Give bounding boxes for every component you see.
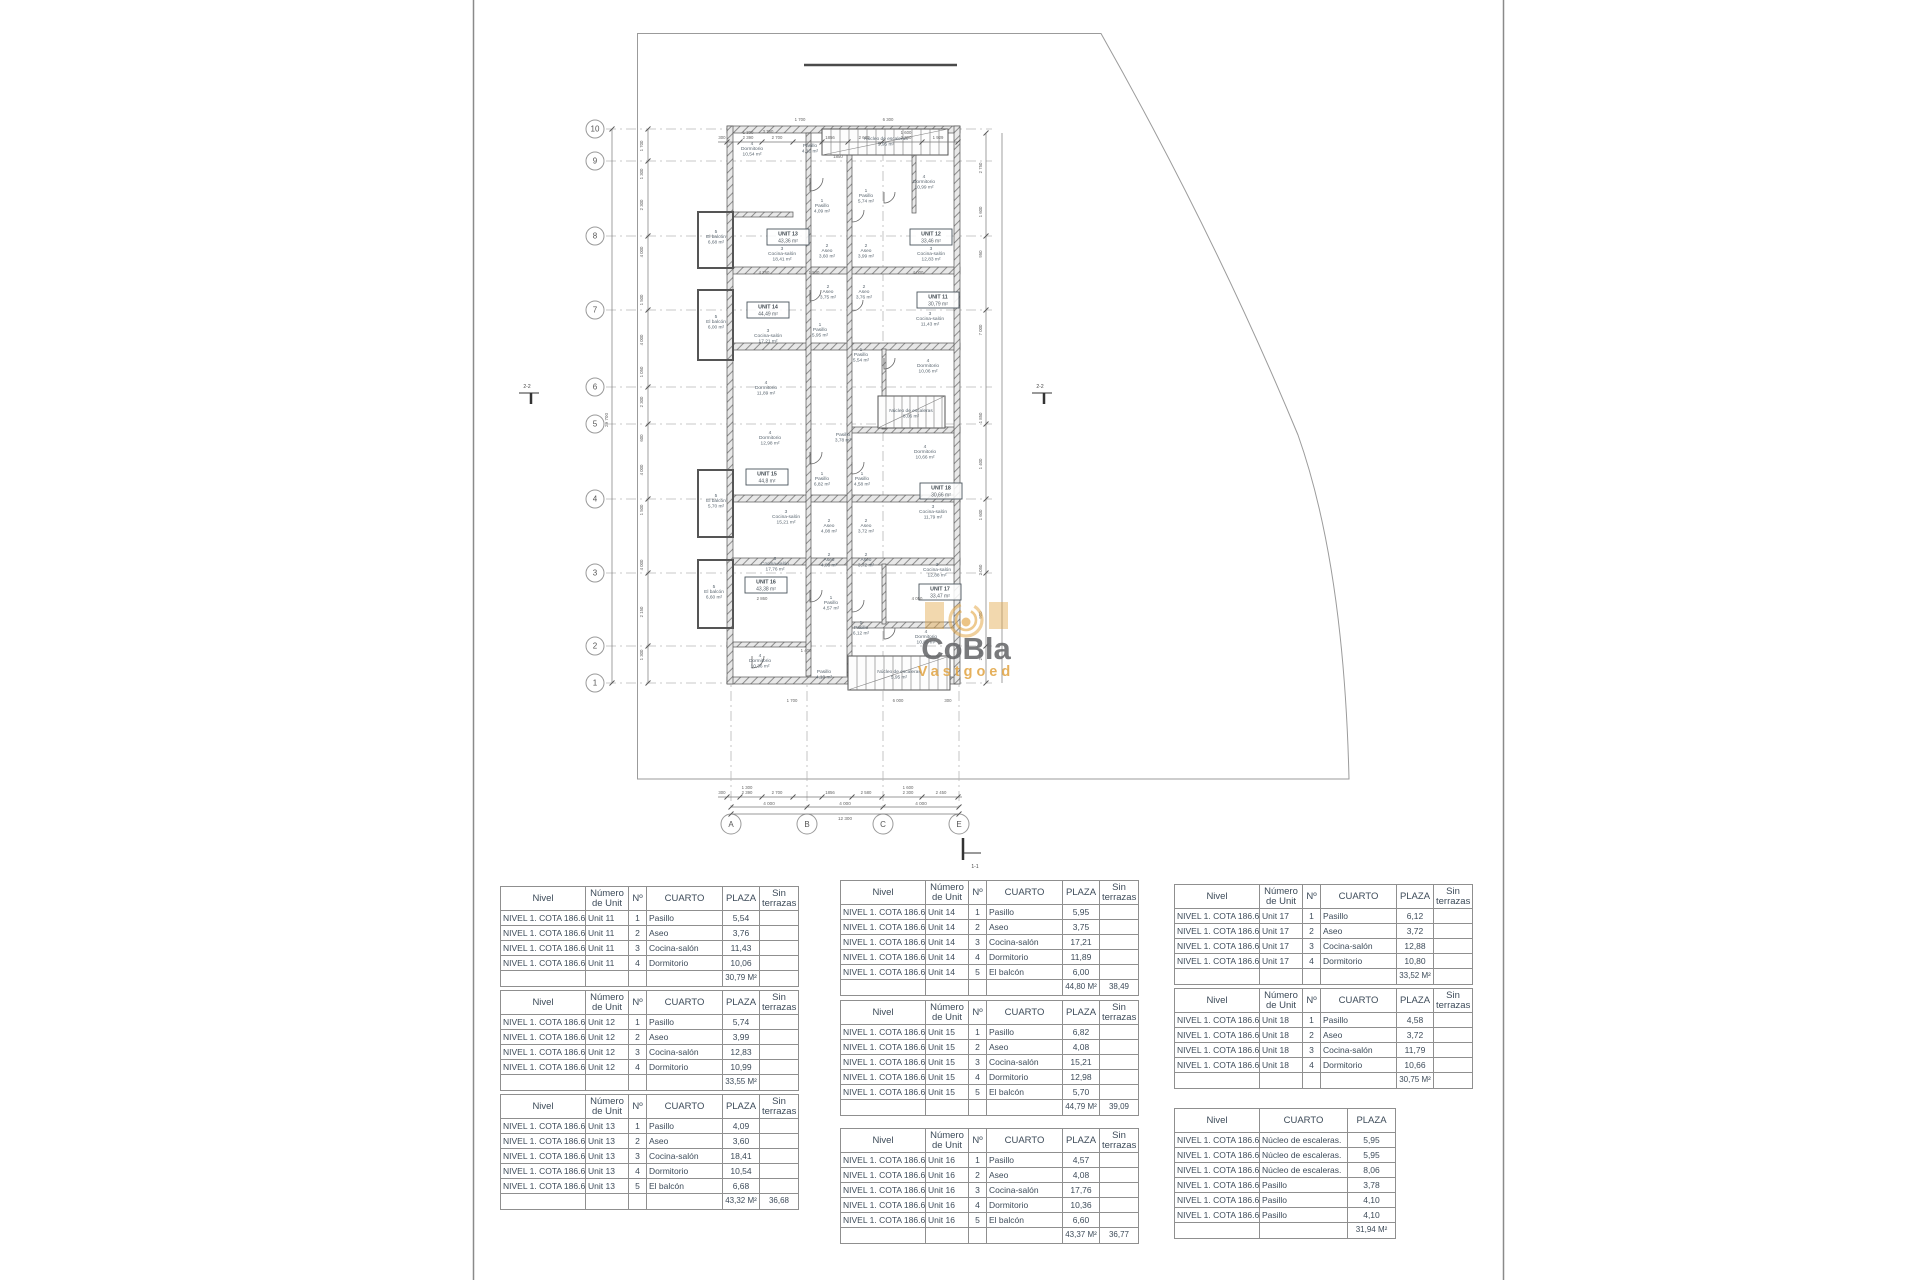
cell-plaza: 10,99 — [723, 1060, 760, 1075]
cell-cuarto — [647, 1075, 723, 1091]
header-plaza: PLAZA — [1063, 1129, 1100, 1153]
cell-plaza: 4,57 — [1063, 1153, 1100, 1168]
table-header-row: NivelNúmero de UnitNºCUARTOPLAZASin terr… — [501, 1095, 799, 1119]
cell-no: 3 — [629, 1149, 647, 1164]
cell-no: 4 — [629, 1164, 647, 1179]
cell-nivel — [1175, 1223, 1260, 1239]
cell-unit: Unit 12 — [586, 1045, 629, 1060]
cell-total-sin — [760, 1075, 799, 1091]
cell-nivel: NIVEL 1. COTA 186.60 — [501, 1015, 586, 1030]
header-numero: Número de Unit — [926, 1001, 969, 1025]
unit-area-table-unit-11: NivelNúmero de UnitNºCUARTOPLAZASin terr… — [500, 886, 799, 987]
cell-sin — [1100, 1070, 1139, 1085]
cell-plaza: 17,21 — [1063, 935, 1100, 950]
cell-nivel: NIVEL 1. COTA 186.60 — [501, 956, 586, 971]
cell-cuarto: Dormitorio — [987, 950, 1063, 965]
cell-nivel: NIVEL 1. COTA 186.60 — [841, 1025, 926, 1040]
common-area-table: NivelCUARTOPLAZANIVEL 1. COTA 186.60Núcl… — [1174, 1108, 1396, 1239]
cell-total-sin — [760, 971, 799, 987]
cell-unit: Unit 11 — [586, 926, 629, 941]
table-header-row: NivelNúmero de UnitNºCUARTOPLAZASin terr… — [501, 991, 799, 1015]
header-plaza: PLAZA — [723, 1095, 760, 1119]
cell-sin — [760, 1045, 799, 1060]
cell-unit — [586, 971, 629, 987]
cell-no: 4 — [969, 950, 987, 965]
table-header-row: NivelCUARTOPLAZA — [1175, 1109, 1396, 1133]
header-nivel: Nivel — [501, 1095, 586, 1119]
cell-sin — [760, 1134, 799, 1149]
cell-total-plaza: 33,52 M² — [1397, 969, 1434, 985]
table-row: NIVEL 1. COTA 186.60Pasillo4,10 — [1175, 1208, 1396, 1223]
table-row: NIVEL 1. COTA 186.60Unit 133Cocina-salón… — [501, 1149, 799, 1164]
cell-cuarto: Aseo — [1321, 1028, 1397, 1043]
cell-sin — [1100, 1198, 1139, 1213]
cell-sin — [1434, 939, 1473, 954]
table-total-row: 30,79 M² — [501, 971, 799, 987]
cell-unit: Unit 16 — [926, 1183, 969, 1198]
table-row: NIVEL 1. COTA 186.60Unit 165El balcón6,6… — [841, 1213, 1139, 1228]
cell-no: 3 — [629, 941, 647, 956]
cell-plaza: 3,60 — [723, 1134, 760, 1149]
cell-plaza: 8,06 — [1348, 1163, 1396, 1178]
table-row: NIVEL 1. COTA 186.60Unit 162Aseo4,08 — [841, 1168, 1139, 1183]
cell-nivel: NIVEL 1. COTA 186.60 — [841, 1153, 926, 1168]
cell-plaza: 3,99 — [723, 1030, 760, 1045]
cell-no: 3 — [969, 1055, 987, 1070]
cell-cuarto: Aseo — [987, 1040, 1063, 1055]
table-row: NIVEL 1. COTA 186.60Unit 181Pasillo4,58 — [1175, 1013, 1473, 1028]
cell-plaza: 10,66 — [1397, 1058, 1434, 1073]
cell-total-plaza: 43,37 M² — [1063, 1228, 1100, 1244]
cell-no: 4 — [629, 1060, 647, 1075]
cell-no: 3 — [1303, 1043, 1321, 1058]
cell-unit: Unit 11 — [586, 911, 629, 926]
header-numero: Número de Unit — [926, 881, 969, 905]
cell-plaza: 4,08 — [1063, 1040, 1100, 1055]
cell-nivel: NIVEL 1. COTA 186.60 — [841, 905, 926, 920]
cell-unit: Unit 13 — [586, 1164, 629, 1179]
cell-no: 5 — [629, 1179, 647, 1194]
cell-cuarto — [1260, 1223, 1348, 1239]
cell-no: 2 — [969, 920, 987, 935]
header-cuarto: CUARTO — [647, 1095, 723, 1119]
cell-unit: Unit 18 — [1260, 1058, 1303, 1073]
cell-no: 2 — [1303, 1028, 1321, 1043]
cell-unit: Unit 17 — [1260, 954, 1303, 969]
cell-nivel: NIVEL 1. COTA 186.60 — [1175, 1028, 1260, 1043]
cell-nivel: NIVEL 1. COTA 186.60 — [1175, 1148, 1260, 1163]
cell-cuarto: Aseo — [647, 1134, 723, 1149]
cell-sin — [1434, 1028, 1473, 1043]
cell-cuarto: Cocina-salón — [987, 935, 1063, 950]
cell-unit: Unit 13 — [586, 1149, 629, 1164]
cell-total-sin: 36,68 — [760, 1194, 799, 1210]
table-row: NIVEL 1. COTA 186.60Unit 135El balcón6,6… — [501, 1179, 799, 1194]
cell-unit: Unit 14 — [926, 920, 969, 935]
cell-nivel: NIVEL 1. COTA 186.60 — [841, 1213, 926, 1228]
table-header-row: NivelNúmero de UnitNºCUARTOPLAZASin terr… — [841, 1001, 1139, 1025]
cell-nivel: NIVEL 1. COTA 186.60 — [1175, 1043, 1260, 1058]
header-sin: Sin terrazas — [1434, 989, 1473, 1013]
cell-no — [969, 1100, 987, 1116]
cell-no: 2 — [629, 1030, 647, 1045]
cell-plaza: 6,00 — [1063, 965, 1100, 980]
table-row: NIVEL 1. COTA 186.60Unit 121Pasillo5,74 — [501, 1015, 799, 1030]
cell-no: 4 — [629, 956, 647, 971]
header-nivel: Nivel — [841, 881, 926, 905]
cell-cuarto: Cocina-salón — [1321, 939, 1397, 954]
cell-sin — [1100, 1183, 1139, 1198]
cell-nivel: NIVEL 1. COTA 186.60 — [1175, 909, 1260, 924]
cell-cuarto: Dormitorio — [647, 1164, 723, 1179]
cell-plaza: 11,43 — [723, 941, 760, 956]
cell-nivel: NIVEL 1. COTA 186.60 — [501, 1164, 586, 1179]
cell-no — [1303, 1073, 1321, 1089]
cell-cuarto: Cocina-salón — [987, 1183, 1063, 1198]
cell-cuarto: Aseo — [647, 926, 723, 941]
cell-no: 2 — [1303, 924, 1321, 939]
cell-unit: Unit 11 — [586, 941, 629, 956]
cell-sin — [760, 956, 799, 971]
cell-nivel: NIVEL 1. COTA 186.60 — [1175, 954, 1260, 969]
table-row: NIVEL 1. COTA 186.60Unit 183Cocina-salón… — [1175, 1043, 1473, 1058]
cell-cuarto: Aseo — [647, 1030, 723, 1045]
cell-cuarto: Aseo — [987, 1168, 1063, 1183]
table-row: NIVEL 1. COTA 186.60Núcleo de escaleras.… — [1175, 1148, 1396, 1163]
cell-total-plaza: 44,79 M² — [1063, 1100, 1100, 1116]
cell-sin — [1100, 1055, 1139, 1070]
cell-total-sin: 39,09 — [1100, 1100, 1139, 1116]
cell-plaza: 5,95 — [1063, 905, 1100, 920]
cell-sin — [760, 911, 799, 926]
header-cuarto: CUARTO — [1321, 989, 1397, 1013]
cell-cuarto: Dormitorio — [987, 1198, 1063, 1213]
table-total-row: 43,37 M²36,77 — [841, 1228, 1139, 1244]
table-header-row: NivelNúmero de UnitNºCUARTOPLAZASin terr… — [841, 881, 1139, 905]
cell-total-plaza: 30,79 M² — [723, 971, 760, 987]
unit-area-table-unit-15: NivelNúmero de UnitNºCUARTOPLAZASin terr… — [840, 1000, 1139, 1116]
header-nivel: Nivel — [1175, 885, 1260, 909]
header-cuarto: CUARTO — [987, 1001, 1063, 1025]
header-cuarto: CUARTO — [1260, 1109, 1348, 1133]
cell-cuarto — [647, 1194, 723, 1210]
cell-plaza: 5,54 — [723, 911, 760, 926]
header-cuarto: CUARTO — [987, 881, 1063, 905]
cell-unit — [926, 1228, 969, 1244]
table-row: NIVEL 1. COTA 186.60Unit 174Dormitorio10… — [1175, 954, 1473, 969]
header-numero: Número de Unit — [586, 991, 629, 1015]
unit-area-table-unit-13: NivelNúmero de UnitNºCUARTOPLAZASin terr… — [500, 1094, 799, 1210]
cell-unit: Unit 16 — [926, 1168, 969, 1183]
cell-nivel: NIVEL 1. COTA 186.60 — [501, 1119, 586, 1134]
cell-plaza: 3,72 — [1397, 1028, 1434, 1043]
table-row: NIVEL 1. COTA 186.60Unit 131Pasillo4,09 — [501, 1119, 799, 1134]
cell-no: 4 — [1303, 954, 1321, 969]
cell-nivel: NIVEL 1. COTA 186.60 — [1175, 1058, 1260, 1073]
table-row: NIVEL 1. COTA 186.60Unit 171Pasillo6,12 — [1175, 909, 1473, 924]
cell-plaza: 6,82 — [1063, 1025, 1100, 1040]
cell-plaza: 11,89 — [1063, 950, 1100, 965]
cell-sin — [1100, 935, 1139, 950]
cell-no: 2 — [629, 926, 647, 941]
cell-sin — [1434, 1058, 1473, 1073]
cell-cuarto: Aseo — [987, 920, 1063, 935]
cell-sin — [1100, 1025, 1139, 1040]
cell-no: 1 — [969, 905, 987, 920]
cell-no: 1 — [629, 911, 647, 926]
table-row: NIVEL 1. COTA 186.60Unit 123Cocina-salón… — [501, 1045, 799, 1060]
cell-nivel: NIVEL 1. COTA 186.60 — [501, 1030, 586, 1045]
header-sin: Sin terrazas — [760, 1095, 799, 1119]
cell-unit: Unit 15 — [926, 1040, 969, 1055]
cell-no: 5 — [969, 1085, 987, 1100]
table-row: NIVEL 1. COTA 186.60Unit 145El balcón6,0… — [841, 965, 1139, 980]
cell-cuarto: Pasillo — [987, 905, 1063, 920]
table-row: NIVEL 1. COTA 186.60Unit 141Pasillo5,95 — [841, 905, 1139, 920]
cell-nivel: NIVEL 1. COTA 186.60 — [1175, 1208, 1260, 1223]
table-row: NIVEL 1. COTA 186.60Unit 111Pasillo5,54 — [501, 911, 799, 926]
cell-cuarto: Cocina-salón — [1321, 1043, 1397, 1058]
table-row: NIVEL 1. COTA 186.60Unit 154Dormitorio12… — [841, 1070, 1139, 1085]
table-row: NIVEL 1. COTA 186.60Unit 122Aseo3,99 — [501, 1030, 799, 1045]
table-total-row: 33,55 M² — [501, 1075, 799, 1091]
cell-nivel: NIVEL 1. COTA 186.60 — [841, 935, 926, 950]
cell-nivel — [501, 1194, 586, 1210]
header-plaza: PLAZA — [1063, 1001, 1100, 1025]
cell-nivel: NIVEL 1. COTA 186.60 — [501, 941, 586, 956]
cell-nivel: NIVEL 1. COTA 186.60 — [841, 1085, 926, 1100]
header-no: Nº — [629, 991, 647, 1015]
header-sin: Sin terrazas — [1100, 1129, 1139, 1153]
cell-sin — [1434, 954, 1473, 969]
table-row: NIVEL 1. COTA 186.60Unit 153Cocina-salón… — [841, 1055, 1139, 1070]
cell-no: 5 — [969, 965, 987, 980]
cell-sin — [1100, 1085, 1139, 1100]
header-plaza: PLAZA — [1063, 881, 1100, 905]
cell-nivel: NIVEL 1. COTA 186.60 — [841, 950, 926, 965]
cell-unit: Unit 15 — [926, 1070, 969, 1085]
cell-plaza: 4,08 — [1063, 1168, 1100, 1183]
table-row: NIVEL 1. COTA 186.60Unit 134Dormitorio10… — [501, 1164, 799, 1179]
cell-plaza: 11,79 — [1397, 1043, 1434, 1058]
cell-no — [629, 1194, 647, 1210]
cell-plaza: 4,10 — [1348, 1193, 1396, 1208]
cell-plaza: 10,80 — [1397, 954, 1434, 969]
cell-cuarto: Pasillo — [1260, 1178, 1348, 1193]
cell-sin — [760, 1179, 799, 1194]
table-header-row: NivelNúmero de UnitNºCUARTOPLAZASin terr… — [841, 1129, 1139, 1153]
cell-no: 1 — [969, 1153, 987, 1168]
unit-area-table-unit-16: NivelNúmero de UnitNºCUARTOPLAZASin terr… — [840, 1128, 1139, 1244]
table-row: NIVEL 1. COTA 186.60Unit 184Dormitorio10… — [1175, 1058, 1473, 1073]
header-plaza: PLAZA — [723, 991, 760, 1015]
cell-unit: Unit 17 — [1260, 909, 1303, 924]
table-row: NIVEL 1. COTA 186.60Unit 113Cocina-salón… — [501, 941, 799, 956]
cell-unit: Unit 17 — [1260, 924, 1303, 939]
table-row: NIVEL 1. COTA 186.60Unit 155El balcón5,7… — [841, 1085, 1139, 1100]
unit-area-table-unit-14: NivelNúmero de UnitNºCUARTOPLAZASin terr… — [840, 880, 1139, 996]
header-plaza: PLAZA — [1397, 989, 1434, 1013]
cell-cuarto: El balcón — [987, 965, 1063, 980]
cell-cuarto: Pasillo — [987, 1153, 1063, 1168]
header-numero: Número de Unit — [586, 1095, 629, 1119]
cell-unit: Unit 17 — [1260, 939, 1303, 954]
cell-unit: Unit 14 — [926, 965, 969, 980]
cell-nivel: NIVEL 1. COTA 186.60 — [501, 1134, 586, 1149]
table-row: NIVEL 1. COTA 186.60Pasillo4,10 — [1175, 1193, 1396, 1208]
cell-total-sin: 36,77 — [1100, 1228, 1139, 1244]
cell-plaza: 3,75 — [1063, 920, 1100, 935]
cell-unit: Unit 15 — [926, 1055, 969, 1070]
cell-cuarto — [987, 1100, 1063, 1116]
cell-unit — [1260, 1073, 1303, 1089]
cell-cuarto — [647, 971, 723, 987]
cell-cuarto: El balcón — [987, 1213, 1063, 1228]
cell-sin — [1100, 905, 1139, 920]
cell-total-plaza: 30,75 M² — [1397, 1073, 1434, 1089]
cell-nivel: NIVEL 1. COTA 186.60 — [1175, 1133, 1260, 1148]
cell-plaza: 4,09 — [723, 1119, 760, 1134]
cell-sin — [760, 1060, 799, 1075]
table-row: NIVEL 1. COTA 186.60Unit 112Aseo3,76 — [501, 926, 799, 941]
cell-no: 2 — [629, 1134, 647, 1149]
cell-plaza: 5,95 — [1348, 1133, 1396, 1148]
cell-total-sin — [1434, 1073, 1473, 1089]
cell-total-sin — [1434, 969, 1473, 985]
cell-no: 4 — [969, 1070, 987, 1085]
cell-unit: Unit 18 — [1260, 1028, 1303, 1043]
cell-cuarto: Núcleo de escaleras. — [1260, 1163, 1348, 1178]
cell-nivel: NIVEL 1. COTA 186.60 — [841, 920, 926, 935]
cell-unit — [926, 1100, 969, 1116]
header-cuarto: CUARTO — [987, 1129, 1063, 1153]
cell-sin — [760, 1015, 799, 1030]
table-row: NIVEL 1. COTA 186.60Unit 164Dormitorio10… — [841, 1198, 1139, 1213]
cell-nivel: NIVEL 1. COTA 186.60 — [841, 1070, 926, 1085]
cell-sin — [1100, 965, 1139, 980]
cell-cuarto: Pasillo — [647, 1119, 723, 1134]
cell-nivel — [841, 1100, 926, 1116]
cell-plaza: 18,41 — [723, 1149, 760, 1164]
table-row: NIVEL 1. COTA 186.60Unit 143Cocina-salón… — [841, 935, 1139, 950]
cell-no: 1 — [969, 1025, 987, 1040]
cell-nivel — [501, 971, 586, 987]
cell-unit — [586, 1075, 629, 1091]
cell-unit: Unit 12 — [586, 1060, 629, 1075]
table-row: NIVEL 1. COTA 186.60Unit 132Aseo3,60 — [501, 1134, 799, 1149]
cell-no: 3 — [969, 935, 987, 950]
cell-cuarto: El balcón — [647, 1179, 723, 1194]
cell-plaza: 4,58 — [1397, 1013, 1434, 1028]
cell-cuarto: Cocina-salón — [647, 1045, 723, 1060]
cell-cuarto — [987, 1228, 1063, 1244]
header-nivel: Nivel — [841, 1129, 926, 1153]
table-row: NIVEL 1. COTA 186.60Unit 163Cocina-salón… — [841, 1183, 1139, 1198]
table-row: NIVEL 1. COTA 186.60Unit 144Dormitorio11… — [841, 950, 1139, 965]
cell-no: 1 — [1303, 909, 1321, 924]
cell-nivel: NIVEL 1. COTA 186.60 — [1175, 939, 1260, 954]
cell-unit: Unit 12 — [586, 1015, 629, 1030]
cell-total-plaza: 43,32 M² — [723, 1194, 760, 1210]
cell-unit: Unit 14 — [926, 935, 969, 950]
cell-plaza: 12,98 — [1063, 1070, 1100, 1085]
unit-area-table-unit-18: NivelNúmero de UnitNºCUARTOPLAZASin terr… — [1174, 988, 1473, 1089]
cell-no: 1 — [629, 1015, 647, 1030]
cell-nivel: NIVEL 1. COTA 186.60 — [1175, 1193, 1260, 1208]
cell-plaza: 5,70 — [1063, 1085, 1100, 1100]
cell-plaza: 10,54 — [723, 1164, 760, 1179]
cell-sin — [1434, 924, 1473, 939]
table-total-row: 43,32 M²36,68 — [501, 1194, 799, 1210]
cell-sin — [1100, 1168, 1139, 1183]
cell-nivel: NIVEL 1. COTA 186.60 — [501, 1045, 586, 1060]
header-nivel: Nivel — [501, 887, 586, 911]
cell-cuarto: Cocina-salón — [647, 1149, 723, 1164]
cell-cuarto — [1321, 1073, 1397, 1089]
cell-sin — [760, 1030, 799, 1045]
cell-unit: Unit 16 — [926, 1198, 969, 1213]
cell-no — [629, 971, 647, 987]
header-numero: Número de Unit — [1260, 989, 1303, 1013]
table-row: NIVEL 1. COTA 186.60Unit 152Aseo4,08 — [841, 1040, 1139, 1055]
cell-plaza: 15,21 — [1063, 1055, 1100, 1070]
cell-unit: Unit 11 — [586, 956, 629, 971]
header-no: Nº — [1303, 989, 1321, 1013]
header-cuarto: CUARTO — [647, 991, 723, 1015]
cell-unit: Unit 14 — [926, 950, 969, 965]
header-plaza: PLAZA — [1397, 885, 1434, 909]
cell-plaza: 12,83 — [723, 1045, 760, 1060]
cell-unit: Unit 16 — [926, 1153, 969, 1168]
header-sin: Sin terrazas — [760, 991, 799, 1015]
cell-no — [629, 1075, 647, 1091]
cell-cuarto: Pasillo — [1321, 1013, 1397, 1028]
table-header-row: NivelNúmero de UnitNºCUARTOPLAZASin terr… — [1175, 989, 1473, 1013]
cell-plaza: 3,78 — [1348, 1178, 1396, 1193]
table-row: NIVEL 1. COTA 186.60Núcleo de escaleras.… — [1175, 1163, 1396, 1178]
header-no: Nº — [969, 881, 987, 905]
cell-no — [1303, 969, 1321, 985]
cell-sin — [1434, 1013, 1473, 1028]
cell-plaza: 5,95 — [1348, 1148, 1396, 1163]
cell-sin — [760, 1164, 799, 1179]
cell-no: 4 — [969, 1198, 987, 1213]
cell-nivel: NIVEL 1. COTA 186.60 — [841, 1055, 926, 1070]
header-numero: Número de Unit — [1260, 885, 1303, 909]
cell-nivel — [501, 1075, 586, 1091]
cell-unit: Unit 13 — [586, 1179, 629, 1194]
table-row: NIVEL 1. COTA 186.60Unit 173Cocina-salón… — [1175, 939, 1473, 954]
cell-total-plaza: 44,80 M² — [1063, 980, 1100, 996]
header-no: Nº — [1303, 885, 1321, 909]
cell-no: 3 — [1303, 939, 1321, 954]
cell-nivel — [841, 1228, 926, 1244]
cell-unit — [926, 980, 969, 996]
cell-no — [969, 980, 987, 996]
cell-plaza: 6,12 — [1397, 909, 1434, 924]
cell-nivel — [1175, 969, 1260, 985]
cell-no: 1 — [629, 1119, 647, 1134]
cell-total-plaza: 33,55 M² — [723, 1075, 760, 1091]
cell-cuarto: Pasillo — [1260, 1208, 1348, 1223]
cell-nivel: NIVEL 1. COTA 186.60 — [1175, 1178, 1260, 1193]
header-sin: Sin terrazas — [1100, 1001, 1139, 1025]
cell-nivel: NIVEL 1. COTA 186.60 — [501, 1149, 586, 1164]
unit-area-table-unit-17: NivelNúmero de UnitNºCUARTOPLAZASin terr… — [1174, 884, 1473, 985]
cell-plaza: 3,76 — [723, 926, 760, 941]
cell-sin — [1434, 1043, 1473, 1058]
header-nivel: Nivel — [501, 991, 586, 1015]
